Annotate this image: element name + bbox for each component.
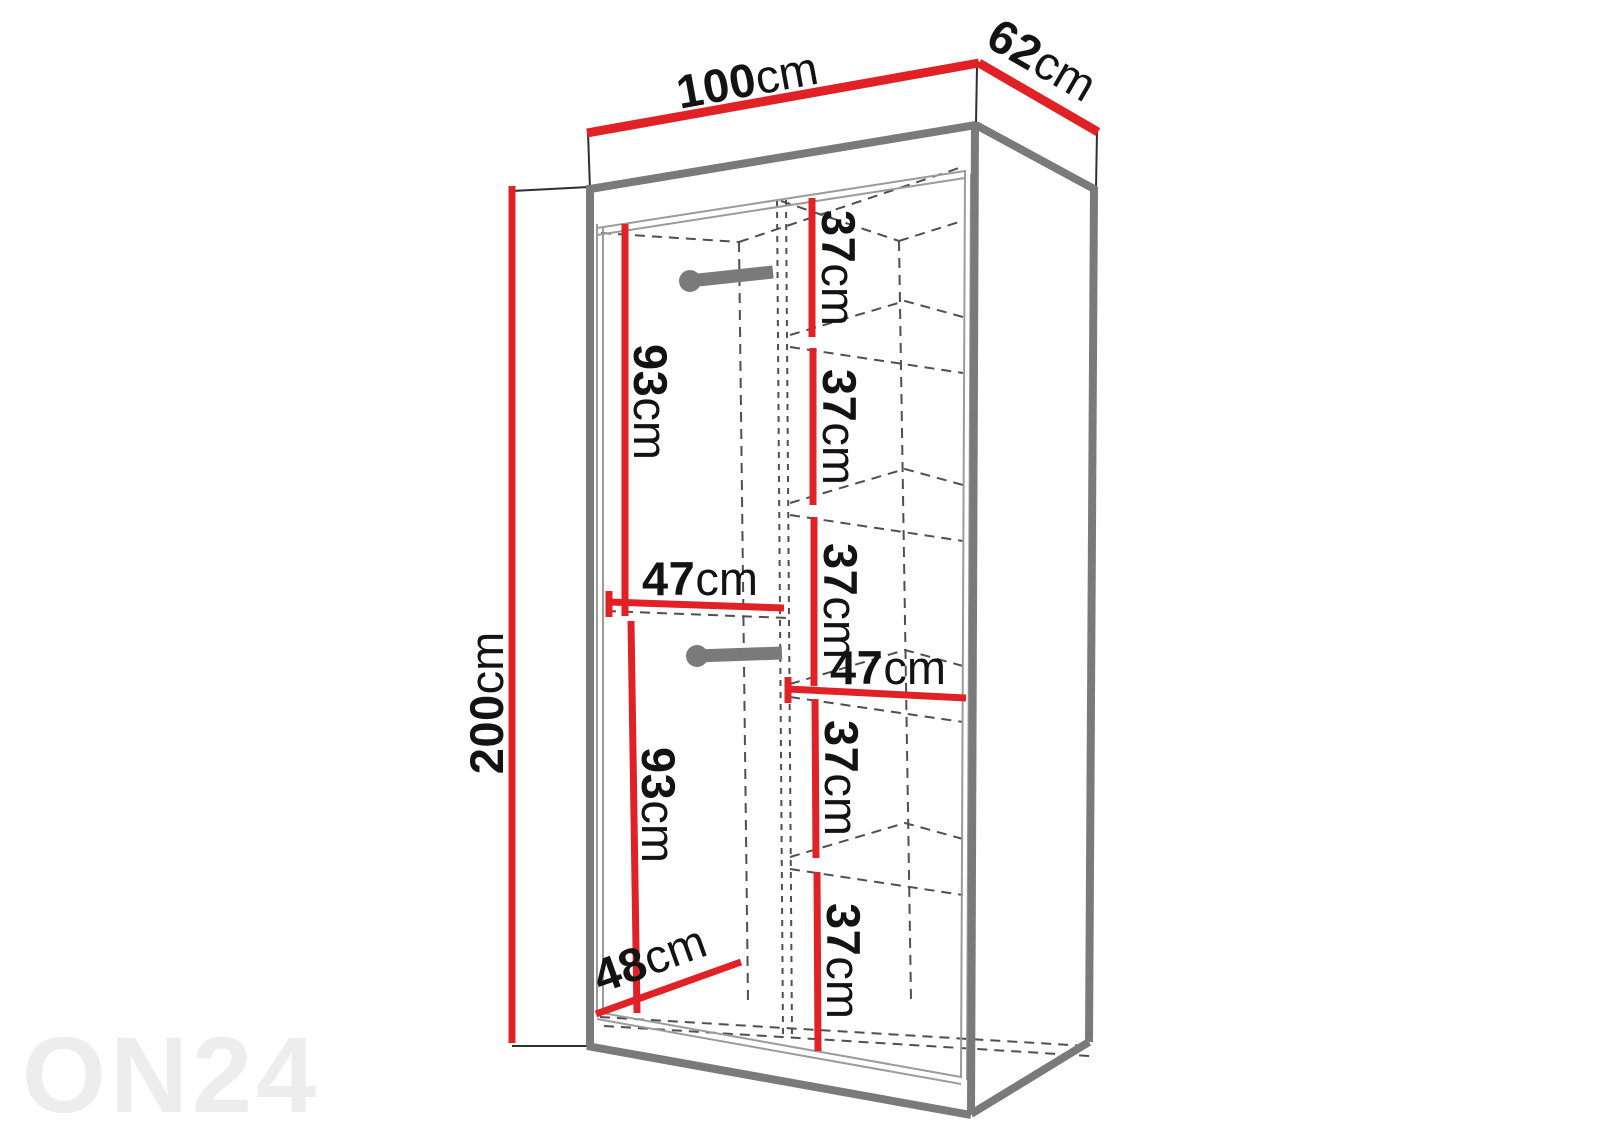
- diagram-svg: 100cm 62cm 200cm 93cm 93cm 47cm 47cm 48c…: [0, 0, 1600, 1145]
- dimension-lines: [512, 63, 1098, 1051]
- dim-label-hanging-lower: 93cm: [632, 747, 685, 863]
- dim-label-shelf-gap-5-value: 37: [817, 903, 870, 956]
- front-bottom-edge: [587, 1046, 971, 1115]
- dim-label-hanging-upper-unit: cm: [624, 397, 677, 460]
- interior-left-wall-line: [597, 224, 603, 1012]
- dim-label-height-unit: cm: [460, 632, 513, 695]
- dim-label-shelf-gap-1-value: 37: [812, 210, 865, 263]
- height-dim-tick: [512, 187, 589, 191]
- back-left-corner-line: [739, 242, 748, 1002]
- top-band-edge: [976, 66, 977, 124]
- back-right-edge: [1089, 187, 1094, 1042]
- dim-label-left-section-value: 47: [642, 552, 695, 605]
- front-right-edge: [971, 122, 975, 1114]
- dim-label-hanging-upper: 93cm: [624, 344, 677, 460]
- dim-label-right-section-unit: cm: [883, 641, 946, 694]
- dim-label-shelf-gap-4-unit: cm: [815, 773, 868, 836]
- dim-label-shelf-gap-2-unit: cm: [813, 422, 866, 485]
- dim-label-bottom-depth: 48cm: [586, 914, 713, 1003]
- watermark-logo: ON24: [22, 1014, 320, 1135]
- front-top-edge: [590, 125, 976, 189]
- dim-label-shelf-gap-5: 37cm: [817, 903, 870, 1019]
- top-band-edge: [588, 133, 590, 189]
- dim-label-shelf-gap-5-unit: cm: [817, 956, 870, 1019]
- dim-label-left-section-unit: cm: [695, 552, 758, 605]
- top-band-outline: [512, 63, 1097, 1046]
- dim-label-width-unit: cm: [751, 41, 822, 104]
- lower-clothes-rail: [696, 653, 782, 656]
- dim-label-shelf-gap-3-unit: cm: [814, 596, 867, 659]
- upper-rail-end-cap: [679, 270, 701, 292]
- wardrobe-dimension-diagram: 100cm 62cm 200cm 93cm 93cm 47cm 47cm 48c…: [0, 0, 1600, 1145]
- dim-label-height: 200cm: [460, 632, 513, 775]
- dim-label-hanging-lower-value: 93: [632, 747, 685, 800]
- dim-label-left-section: 47cm: [642, 552, 758, 605]
- interior-floor-line: [597, 1012, 961, 1084]
- dim-label-shelf-gap-4: 37cm: [815, 720, 868, 836]
- dim-label-hanging-lower-unit: cm: [632, 800, 685, 863]
- dim-label-shelf-gap-4-value: 37: [815, 720, 868, 773]
- left-shelf-outline: [606, 611, 788, 618]
- dim-label-shelf-gap-2-value: 37: [813, 369, 866, 422]
- upper-clothes-rail: [689, 272, 773, 281]
- lower-rail-end-cap: [686, 645, 708, 667]
- dim-label-shelf-gap-1: 37cm: [812, 210, 865, 326]
- dim-label-shelf-gap-1-unit: cm: [812, 263, 865, 326]
- divider-front-edge-line: [786, 200, 792, 1035]
- dim-label-shelf-gap-3-value: 37: [814, 543, 867, 596]
- dim-label-shelf-gap-2: 37cm: [813, 369, 866, 485]
- dim-label-height-value: 200: [460, 694, 513, 774]
- side-top-edge: [976, 125, 1096, 190]
- dim-label-shelf-gap-3: 37cm: [814, 543, 867, 659]
- top-band-edge: [588, 63, 1097, 189]
- divider-back-to-wall-line: [899, 221, 962, 241]
- dim-label-hanging-upper-value: 93: [624, 344, 677, 397]
